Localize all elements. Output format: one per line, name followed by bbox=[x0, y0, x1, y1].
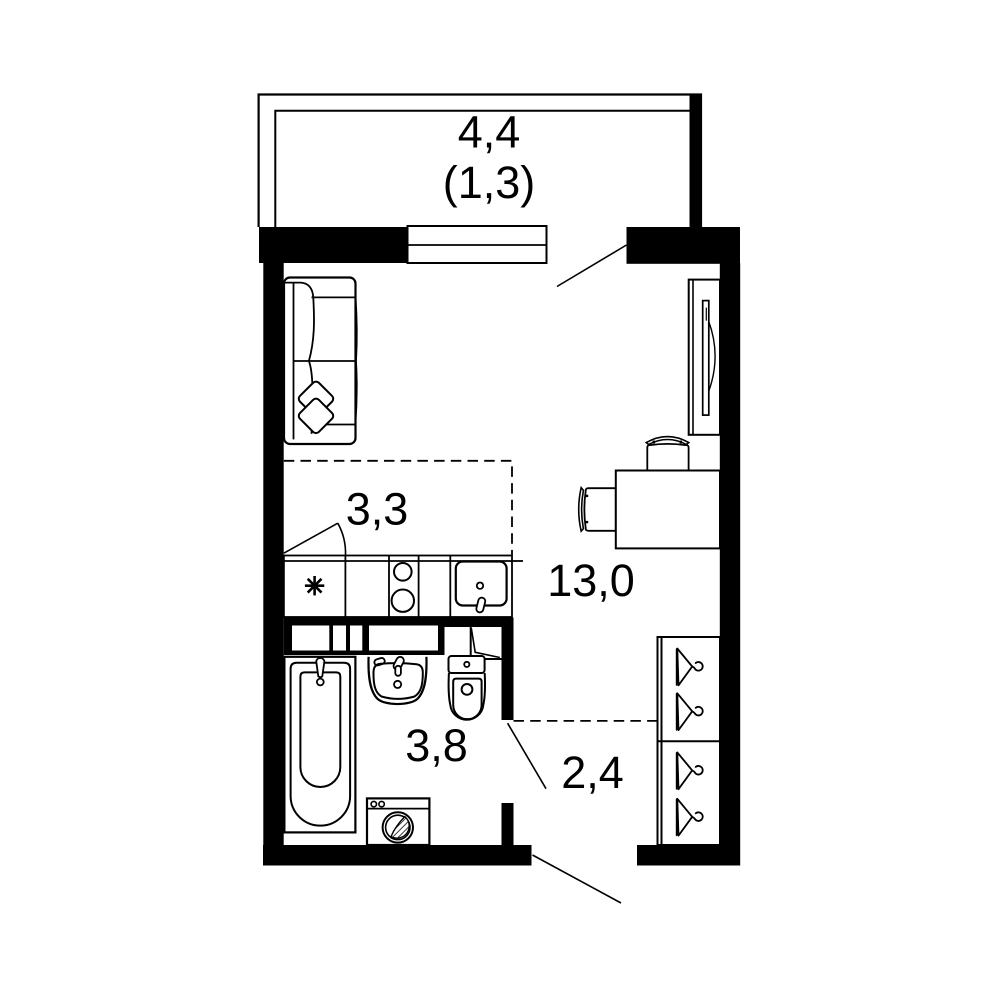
svg-text:(1,3): (1,3) bbox=[443, 157, 536, 208]
svg-text:3,3: 3,3 bbox=[346, 484, 409, 535]
svg-text:4,4: 4,4 bbox=[458, 107, 521, 158]
svg-text:2,4: 2,4 bbox=[561, 747, 624, 798]
svg-text:3,8: 3,8 bbox=[405, 720, 468, 771]
svg-text:13,0: 13,0 bbox=[547, 555, 635, 606]
